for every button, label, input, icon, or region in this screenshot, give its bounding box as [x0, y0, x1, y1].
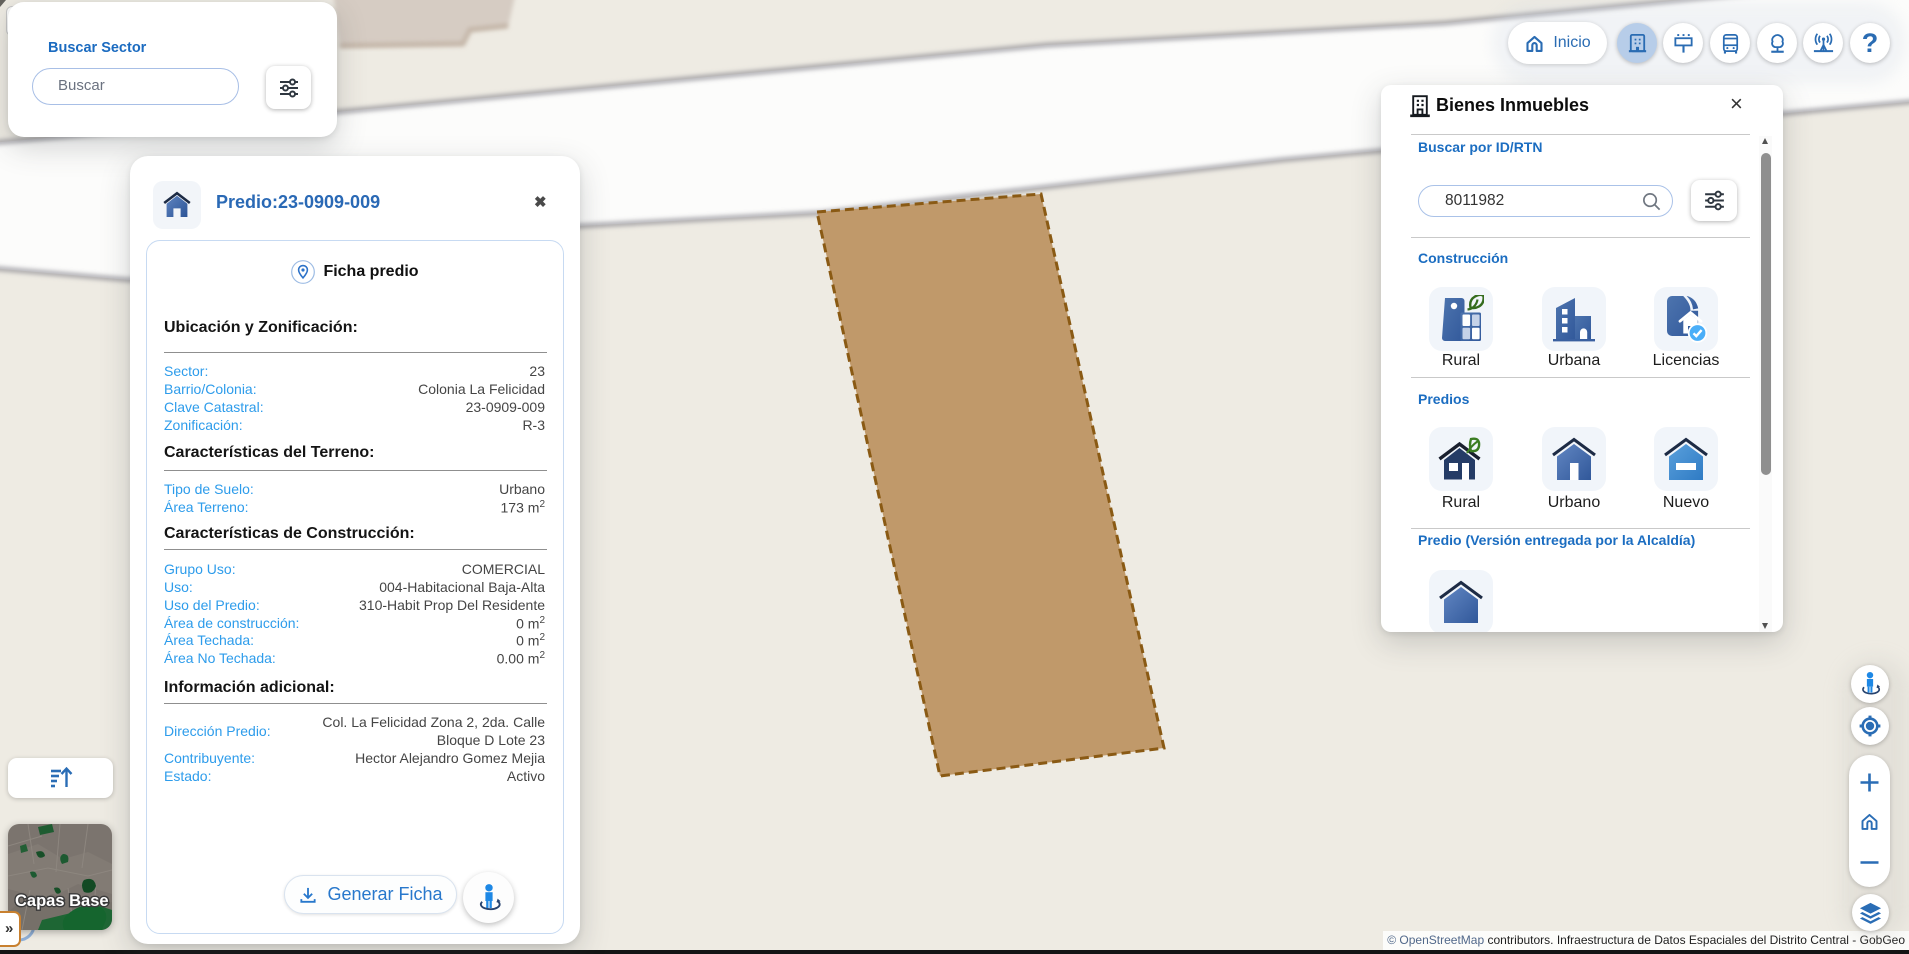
svg-text:Capas Base: Capas Base: [15, 892, 109, 910]
